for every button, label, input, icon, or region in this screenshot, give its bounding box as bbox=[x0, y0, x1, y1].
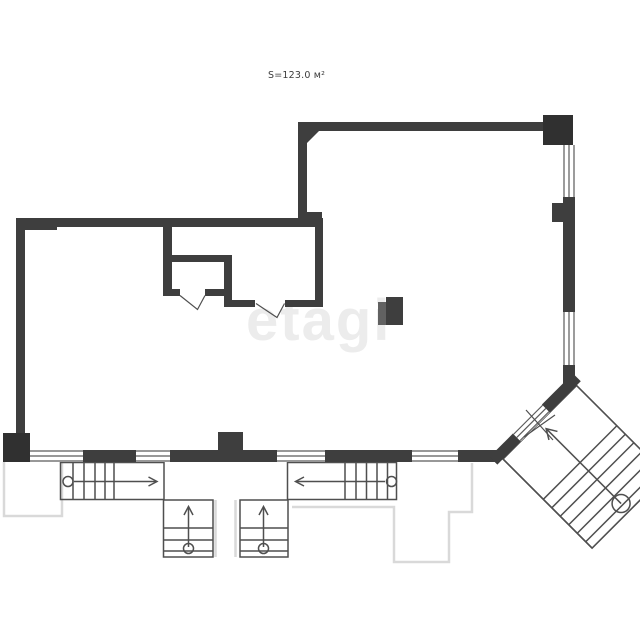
floor-plan: etagi S=123.0 м² bbox=[0, 0, 640, 640]
window bbox=[136, 450, 170, 462]
diagonal-staircase bbox=[490, 373, 640, 553]
left-wall bbox=[16, 218, 25, 434]
top-wall bbox=[298, 122, 543, 131]
partition-wall bbox=[285, 300, 323, 307]
stair-run-right bbox=[61, 463, 165, 500]
right-wall-segment bbox=[563, 197, 575, 312]
stairs bbox=[61, 463, 397, 558]
wall-junction-step bbox=[305, 212, 322, 219]
bottom-left-corner-block bbox=[3, 433, 30, 462]
top-right-corner-block bbox=[543, 115, 573, 145]
stair-run-left bbox=[288, 463, 397, 500]
door-swing-icon bbox=[180, 296, 205, 310]
stairwell-outline bbox=[503, 385, 640, 548]
window bbox=[563, 312, 575, 365]
bottom-wall-segment bbox=[325, 450, 412, 462]
partition-wall bbox=[224, 255, 232, 307]
interior-partitions bbox=[163, 227, 323, 307]
corner-chamfer bbox=[307, 131, 319, 143]
area-label: S=123.0 м² bbox=[268, 70, 325, 81]
pilaster bbox=[218, 432, 243, 452]
top-left-wall bbox=[17, 218, 323, 227]
partition-wall bbox=[225, 300, 255, 307]
outer-walls bbox=[3, 115, 575, 462]
partition-wall bbox=[315, 227, 323, 307]
stair-run-up-a bbox=[164, 500, 214, 557]
partition-wall bbox=[205, 289, 226, 296]
stair-run-up-b bbox=[240, 500, 288, 557]
left-landing-outline bbox=[4, 462, 62, 516]
partition-wall bbox=[163, 289, 180, 296]
bottom-wall-segment bbox=[83, 450, 136, 462]
stair-start-circle bbox=[63, 477, 73, 487]
floor-plan-drawing bbox=[0, 0, 640, 640]
door-swing-icon bbox=[256, 304, 285, 318]
window bbox=[30, 450, 83, 462]
window bbox=[563, 145, 575, 197]
partition-wall bbox=[168, 255, 232, 262]
mid-vertical-wall bbox=[298, 122, 307, 218]
window bbox=[412, 450, 458, 462]
window bbox=[277, 450, 325, 462]
right-terrace-outline bbox=[292, 463, 472, 562]
right-wall-bump bbox=[552, 203, 563, 222]
column bbox=[378, 297, 403, 325]
wall-step bbox=[25, 227, 57, 230]
exterior-landing-outlines bbox=[4, 462, 472, 562]
